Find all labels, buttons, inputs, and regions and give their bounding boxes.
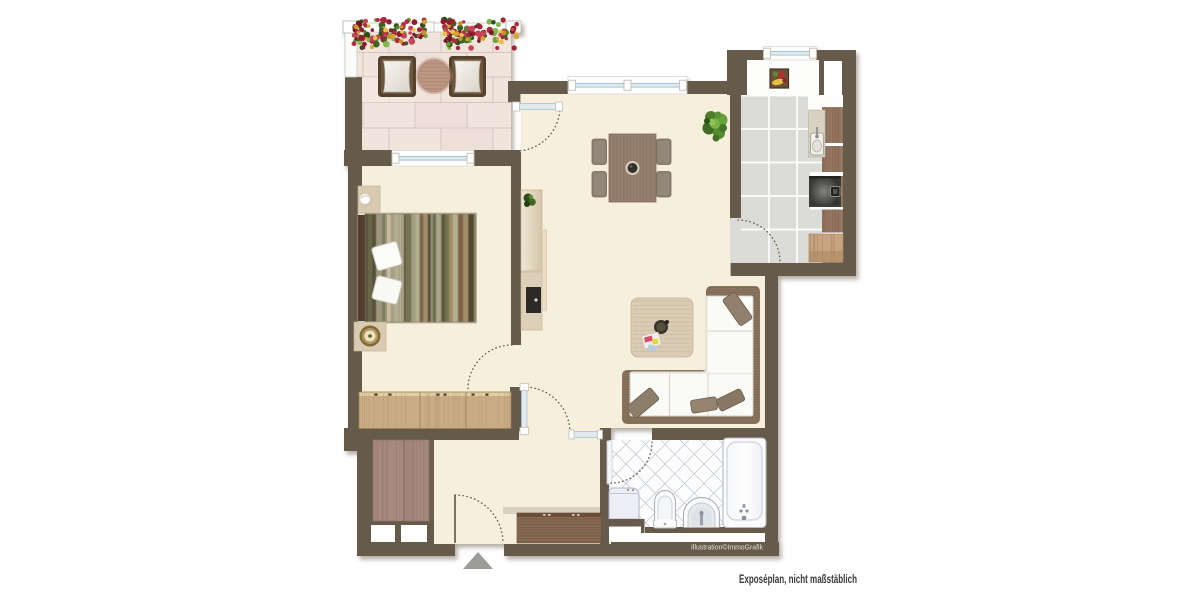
svg-text:Illustration©ImmoGrafik: Illustration©ImmoGrafik <box>691 543 763 552</box>
svg-text:Exposéplan, nicht maßstäblich: Exposéplan, nicht maßstäblich <box>739 574 857 586</box>
